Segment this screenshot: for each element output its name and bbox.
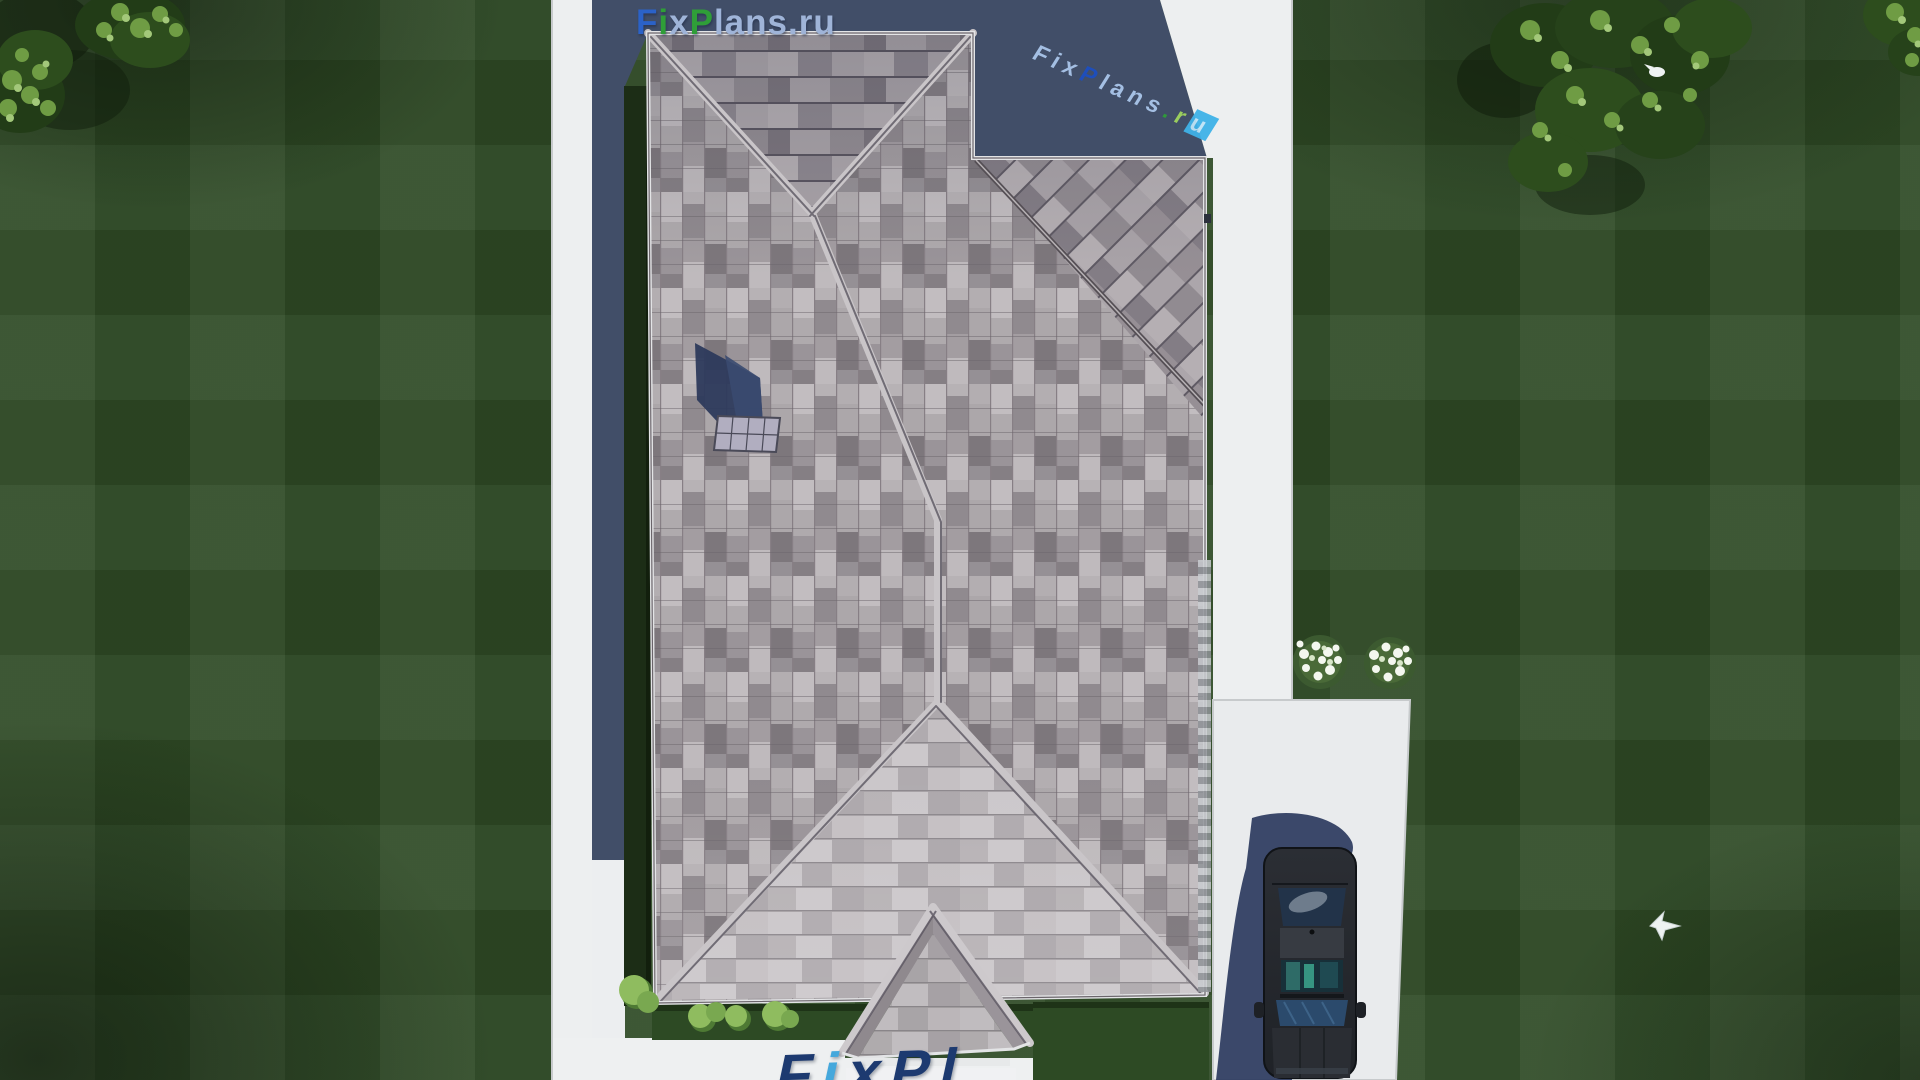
house-roof — [648, 33, 1211, 1080]
fixplans-watermark-top: FixPlans.ru — [636, 3, 836, 43]
wm-bottom-rest: xPl — [842, 1036, 974, 1080]
logo-letters-rest: lans.ru — [714, 3, 836, 42]
logo-letter-p: P — [690, 3, 714, 42]
skylight — [714, 416, 780, 452]
grass-patch-se — [1033, 1002, 1209, 1080]
car-mirror-right — [1356, 1002, 1366, 1018]
render-graphics — [0, 0, 1920, 1080]
logo-letter-f: F — [636, 3, 658, 42]
logo-letter-x: x — [669, 3, 689, 42]
bird-flying — [1650, 912, 1680, 940]
logo-letter-i: i — [658, 3, 669, 42]
tree-top-right — [1457, 0, 1752, 215]
aerial-render-scene: FixPlans.ru FixPlans.ru FixPl — [0, 0, 1920, 1080]
walkway-west — [552, 0, 592, 1080]
east-eave-band — [1198, 560, 1211, 992]
flower-bush — [1364, 637, 1416, 689]
car — [1254, 848, 1366, 1078]
flower-bush — [1293, 635, 1347, 689]
car-mirror-left — [1254, 1002, 1264, 1018]
gutter-drop — [1204, 214, 1211, 223]
tree-corner-piece — [1863, 0, 1920, 76]
fixplans-watermark-bottom: FixPl — [770, 1035, 975, 1080]
tree-top-left — [0, 0, 190, 133]
